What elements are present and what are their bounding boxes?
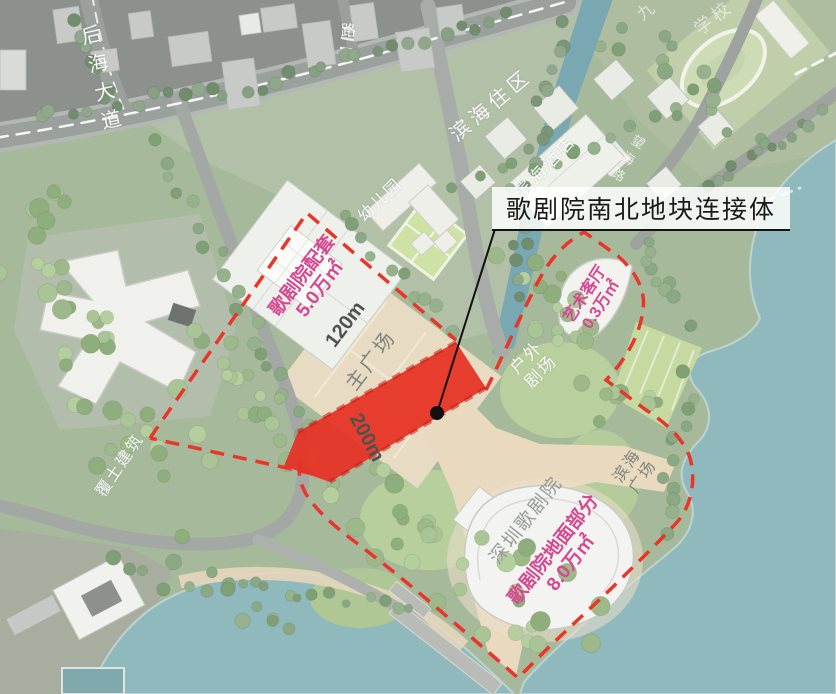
callout-anchor-dot xyxy=(430,406,444,420)
callout-text: 歌剧院南北地块连接体 xyxy=(506,190,776,226)
map-graphics xyxy=(0,0,836,694)
pool xyxy=(62,668,124,694)
site-plan-map: 后海大道 路 九 学校 滨海住区 滨海酒店 幼儿园 望海路 歌剧院配套 5.0万… xyxy=(0,0,836,694)
callout-connector-label: 歌剧院南北地块连接体 xyxy=(492,187,790,231)
